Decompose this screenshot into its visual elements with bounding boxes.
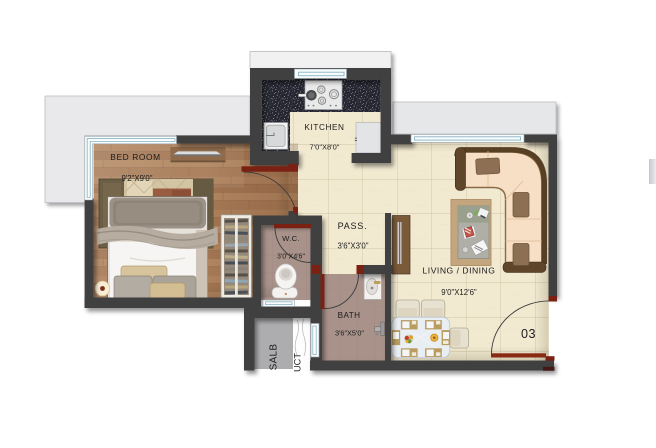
- svg-text:BATH: BATH: [338, 311, 361, 320]
- svg-text:KITCHEN: KITCHEN: [304, 123, 344, 132]
- svg-text:SALB: SALB: [269, 344, 280, 371]
- svg-text:9'2"X9'0": 9'2"X9'0": [121, 174, 152, 183]
- svg-text:PASS.: PASS.: [338, 221, 368, 231]
- svg-text:3'6"X5'0": 3'6"X5'0": [335, 328, 364, 337]
- svg-text:03: 03: [521, 327, 536, 341]
- svg-text:7'0"X8'0": 7'0"X8'0": [310, 143, 340, 152]
- svg-text:UCT: UCT: [293, 353, 303, 372]
- svg-text:3'0"X4'6": 3'0"X4'6": [277, 253, 305, 260]
- svg-text:BED ROOM: BED ROOM: [110, 152, 160, 162]
- svg-text:9'0"X12'6": 9'0"X12'6": [441, 288, 477, 297]
- svg-text:3'6"X3'0": 3'6"X3'0": [337, 241, 368, 250]
- svg-text:W.C.: W.C.: [282, 234, 300, 243]
- svg-text:LIVING / DINING: LIVING / DINING: [423, 266, 496, 276]
